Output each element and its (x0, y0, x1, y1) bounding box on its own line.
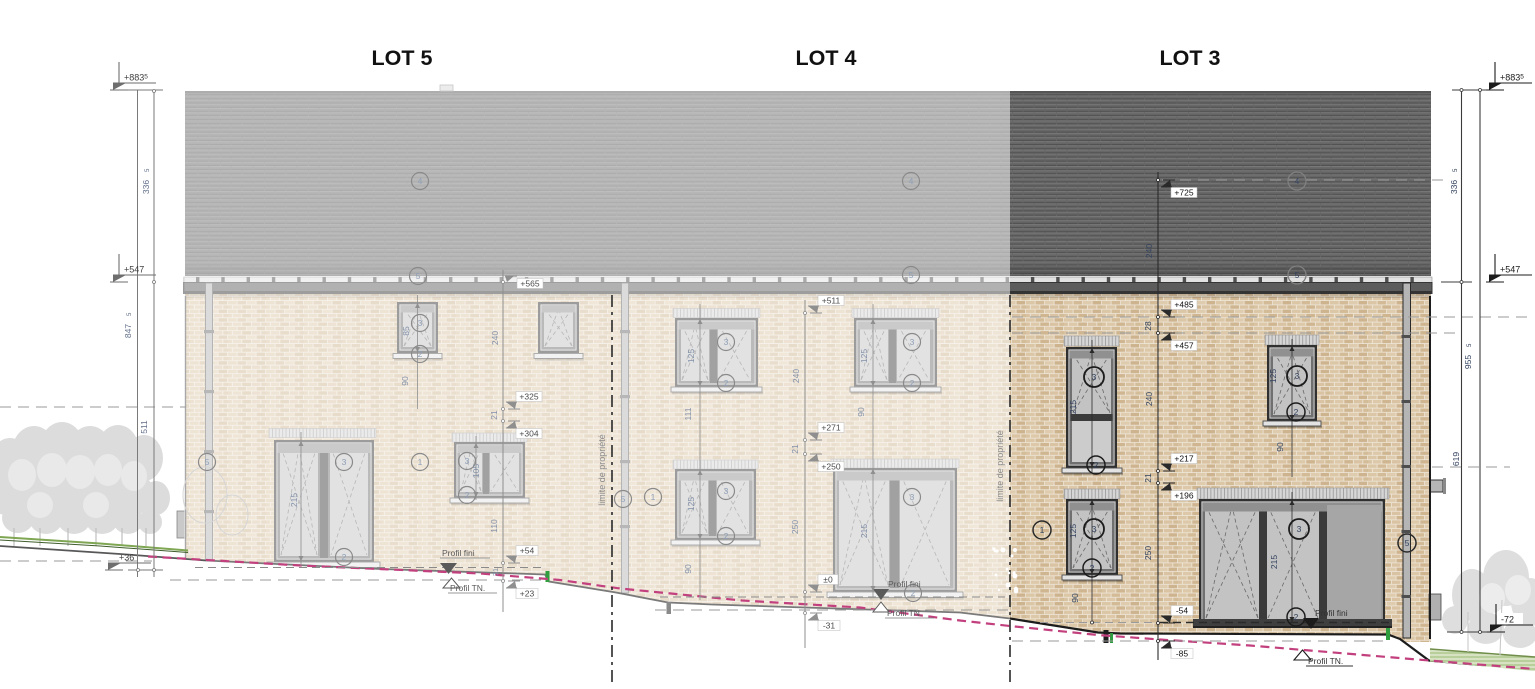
svg-text:250: 250 (790, 520, 800, 534)
svg-text:240: 240 (1144, 244, 1154, 258)
svg-text:LOT 4: LOT 4 (796, 46, 857, 70)
svg-text:125: 125 (686, 497, 696, 511)
svg-text:21: 21 (489, 410, 499, 420)
svg-text:240: 240 (791, 369, 801, 383)
svg-text:3: 3 (418, 318, 423, 328)
svg-text:Profil TN.: Profil TN. (450, 583, 485, 593)
svg-text:-31: -31 (823, 621, 836, 631)
svg-text:5: 5 (1405, 538, 1410, 548)
svg-text:5: 5 (205, 457, 210, 467)
svg-text:5: 5 (621, 494, 626, 504)
svg-text:955: 955 (1463, 355, 1473, 369)
svg-text:limite de propriété: limite de propriété (597, 434, 607, 506)
svg-text:3: 3 (724, 337, 729, 347)
svg-text:2: 2 (418, 349, 423, 359)
svg-text:31: 31 (491, 568, 500, 576)
svg-text:3: 3 (1092, 524, 1097, 534)
svg-text:1: 1 (1040, 525, 1045, 535)
svg-text:3: 3 (1295, 371, 1300, 381)
svg-text:3: 3 (1092, 372, 1097, 382)
svg-text:511: 511 (139, 420, 149, 434)
svg-text:2: 2 (910, 378, 915, 388)
svg-text:+196: +196 (1174, 491, 1193, 501)
svg-text:125: 125 (1268, 369, 1278, 383)
svg-text:2: 2 (724, 378, 729, 388)
svg-text:90: 90 (856, 407, 866, 417)
svg-text:5: 5 (1295, 270, 1300, 280)
svg-text:+457: +457 (1174, 341, 1193, 351)
svg-text:215: 215 (1068, 400, 1078, 414)
svg-text:85: 85 (401, 326, 411, 336)
svg-text:111: 111 (683, 407, 693, 420)
svg-text:125: 125 (859, 349, 869, 363)
svg-text:Profil TN.: Profil TN. (1308, 656, 1343, 666)
svg-text:5: 5 (416, 271, 421, 281)
svg-text:2: 2 (724, 531, 729, 541)
svg-text:240: 240 (490, 331, 500, 345)
svg-text:21: 21 (790, 444, 800, 454)
svg-text:-72: -72 (1501, 615, 1514, 625)
svg-text:28: 28 (1143, 321, 1153, 331)
svg-text:2: 2 (342, 552, 347, 562)
svg-text:215: 215 (1269, 555, 1279, 569)
svg-text:250: 250 (1143, 546, 1153, 560)
svg-text:5: 5 (909, 270, 914, 280)
svg-text:+36: +36 (119, 553, 134, 563)
svg-text:215: 215 (859, 524, 869, 538)
svg-text:+725: +725 (1174, 188, 1193, 198)
svg-text:90: 90 (1275, 442, 1285, 452)
svg-text:+23: +23 (520, 589, 535, 599)
svg-text:336: 336 (141, 180, 151, 194)
svg-text:+547: +547 (124, 265, 144, 275)
svg-text:+565: +565 (520, 279, 539, 289)
svg-text:125: 125 (1068, 524, 1078, 538)
svg-text:3: 3 (910, 492, 915, 502)
svg-text:105: 105 (471, 464, 481, 478)
svg-text:3: 3 (465, 456, 470, 466)
svg-text:2: 2 (911, 588, 916, 598)
svg-text:3: 3 (724, 486, 729, 496)
svg-text:90: 90 (400, 376, 410, 386)
svg-text:619: 619 (1451, 452, 1461, 466)
svg-text:+304: +304 (519, 429, 538, 439)
svg-text:+54: +54 (520, 546, 535, 556)
svg-text:2: 2 (1294, 407, 1299, 417)
svg-text:215: 215 (289, 493, 299, 507)
svg-text:1: 1 (418, 457, 423, 467)
svg-text:1: 1 (651, 492, 656, 502)
svg-text:+547: +547 (1500, 265, 1520, 275)
svg-text:-54: -54 (1176, 606, 1189, 616)
svg-text:110: 110 (489, 519, 499, 533)
svg-text:+217: +217 (1174, 454, 1193, 464)
svg-text:+511: +511 (822, 296, 841, 306)
svg-text:90: 90 (1070, 593, 1080, 603)
svg-text:3: 3 (1297, 524, 1302, 534)
svg-text:LOT 5: LOT 5 (372, 46, 433, 70)
svg-text:2: 2 (1094, 460, 1099, 470)
svg-text:90: 90 (683, 564, 693, 574)
svg-text:4: 4 (418, 176, 423, 186)
svg-text:+250: +250 (821, 462, 840, 472)
svg-text:Profil fini: Profil fini (888, 579, 921, 589)
svg-text:+325: +325 (519, 392, 538, 402)
svg-text:847: 847 (123, 324, 133, 338)
svg-text:4: 4 (1295, 176, 1300, 186)
svg-text:240: 240 (1144, 392, 1154, 406)
svg-text:+485: +485 (1174, 300, 1193, 310)
svg-text:3: 3 (910, 337, 915, 347)
svg-text:±0: ±0 (823, 575, 833, 585)
svg-text:2: 2 (465, 490, 470, 500)
svg-text:LOT 3: LOT 3 (1160, 46, 1221, 70)
svg-text:Profil fini: Profil fini (1315, 608, 1348, 618)
svg-text:3: 3 (342, 457, 347, 467)
svg-text:125: 125 (686, 349, 696, 363)
svg-text:limite de propriété: limite de propriété (995, 430, 1005, 502)
svg-text:Profil TN.: Profil TN. (887, 608, 922, 618)
svg-text:336: 336 (1449, 180, 1459, 194)
svg-text:-85: -85 (1176, 649, 1189, 659)
svg-text:Profil fini: Profil fini (442, 548, 475, 558)
svg-text:+271: +271 (821, 423, 840, 433)
svg-text:4: 4 (909, 176, 914, 186)
svg-text:21: 21 (1143, 473, 1153, 483)
